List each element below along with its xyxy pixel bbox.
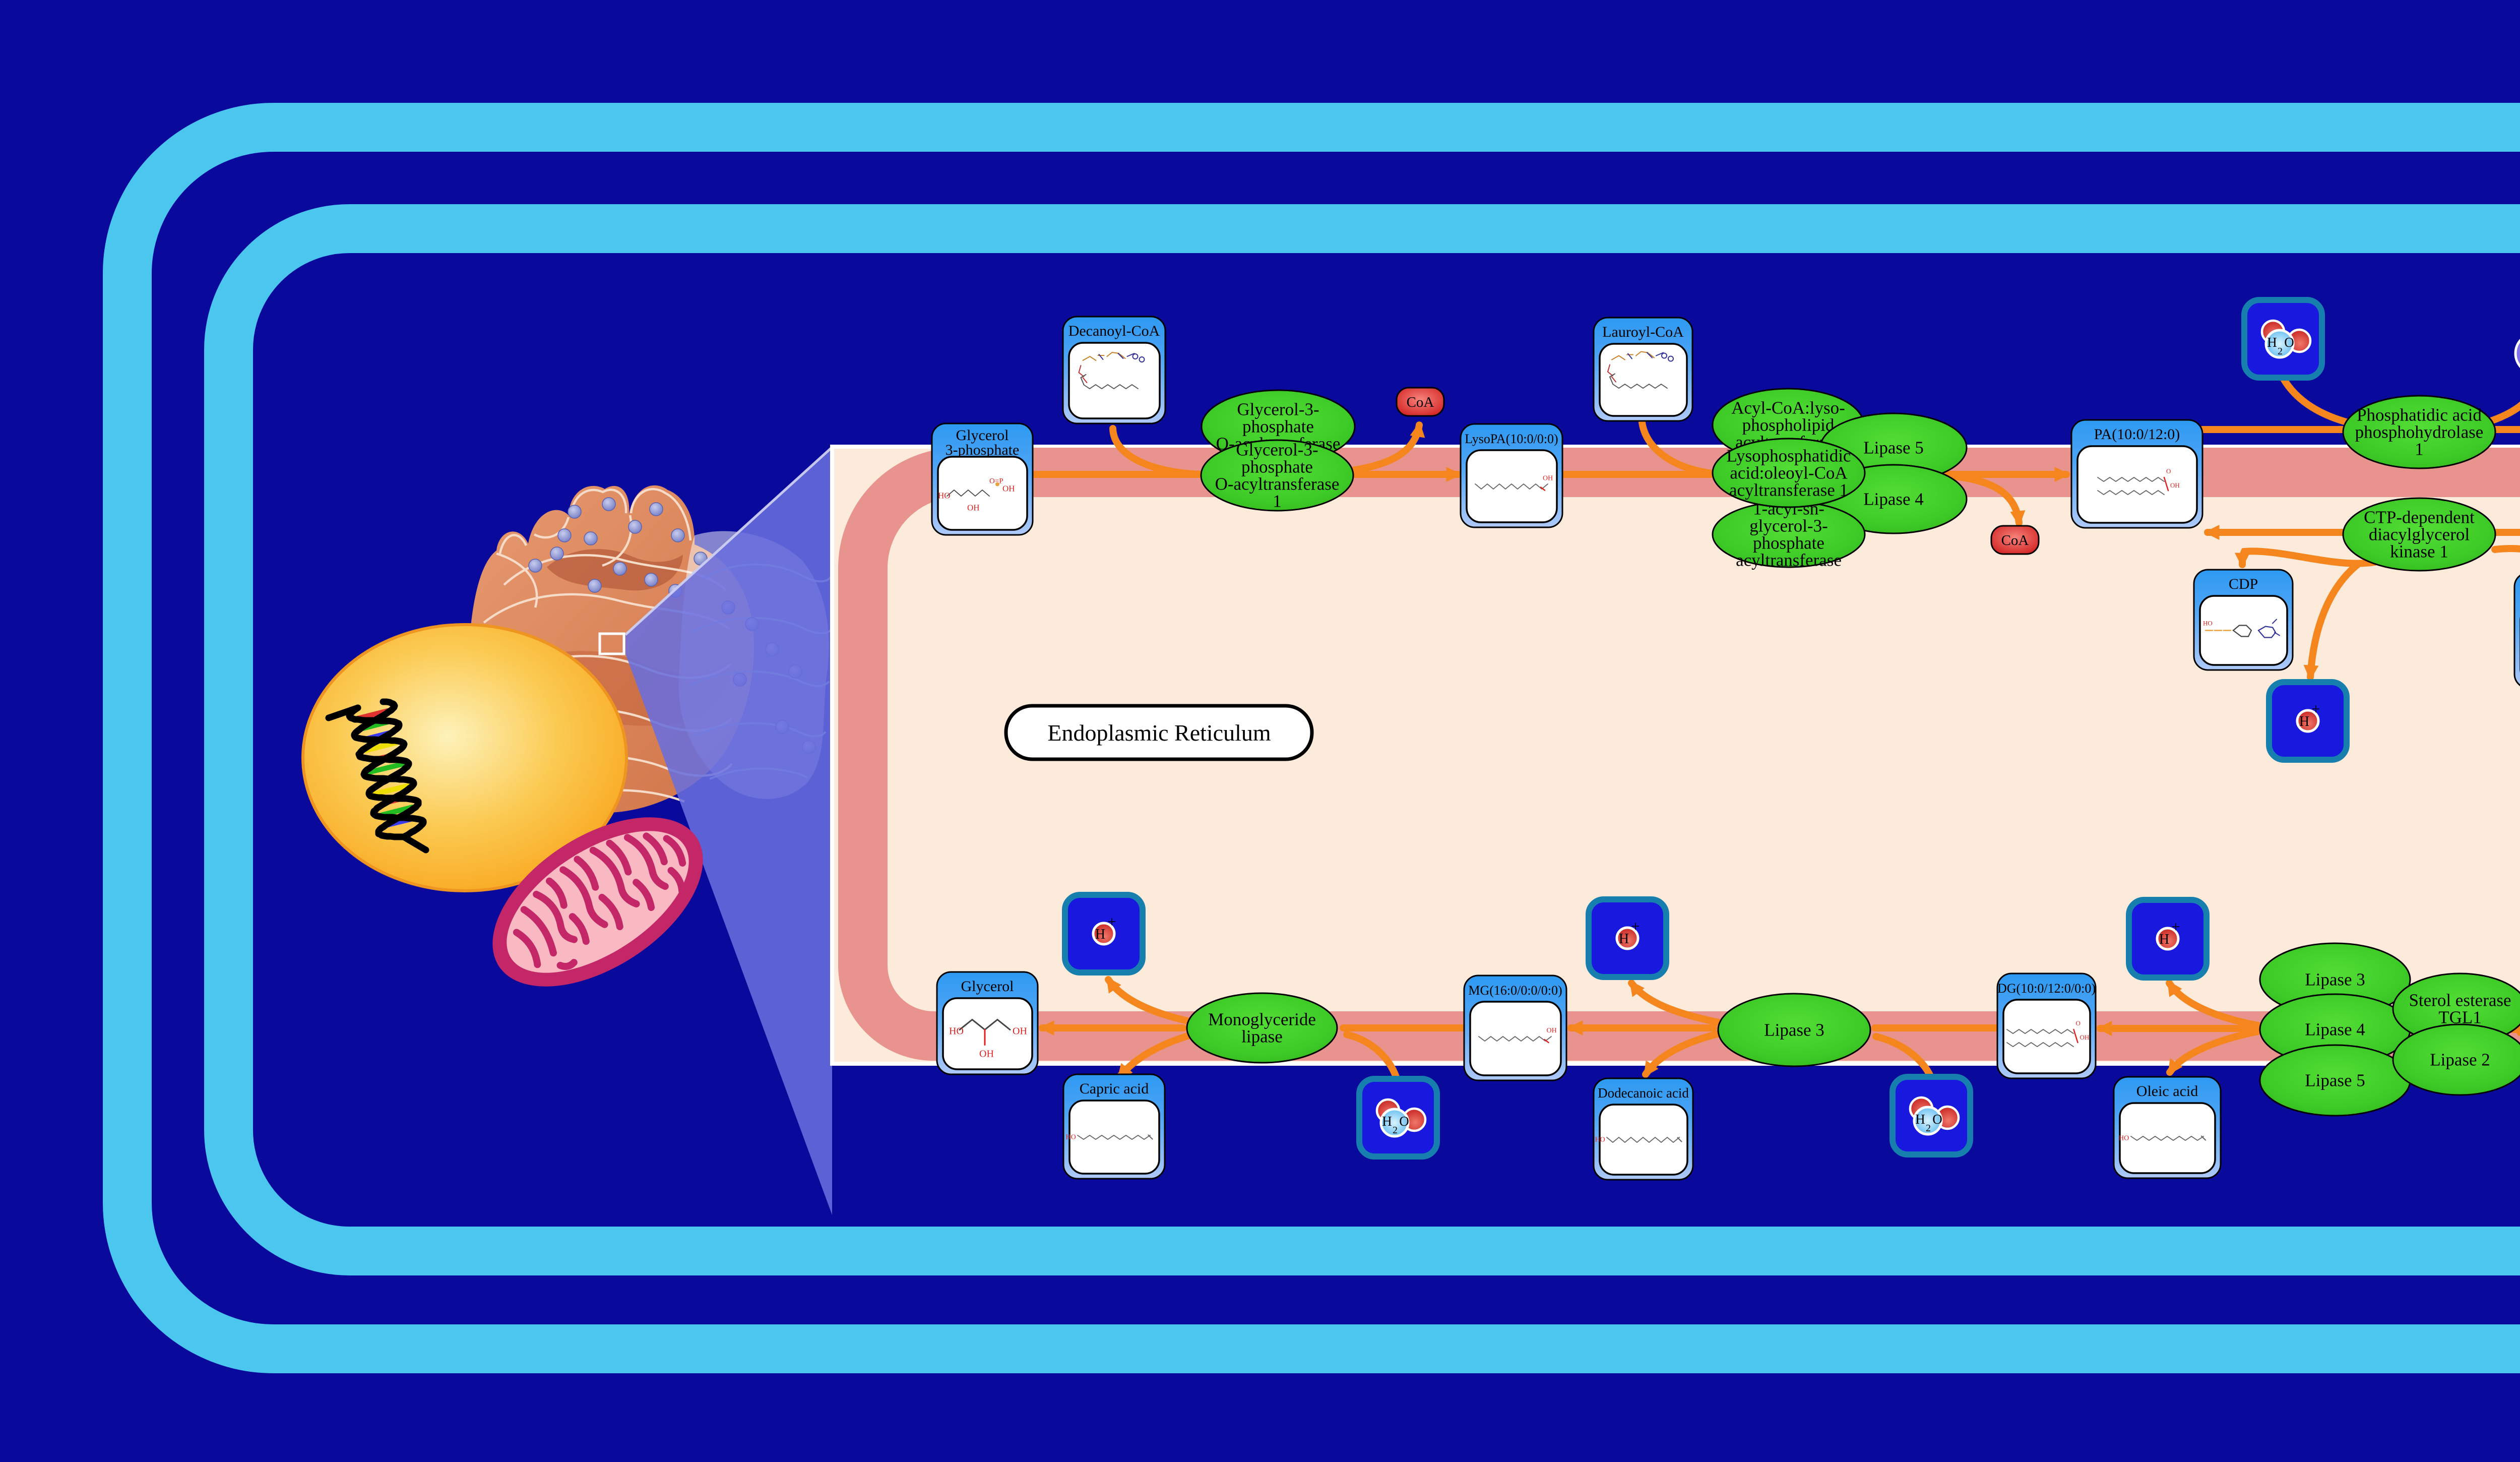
- svg-text:OH: OH: [1543, 475, 1553, 482]
- svg-text:+: +: [1108, 913, 1116, 930]
- svg-text:Glycerol: Glycerol: [961, 978, 1014, 995]
- svg-text:HO: HO: [2203, 620, 2213, 627]
- svg-text:Lipase 4: Lipase 4: [1863, 490, 1924, 509]
- svg-text:OH: OH: [979, 1049, 994, 1060]
- svg-text:Lipase 5: Lipase 5: [2305, 1071, 2365, 1090]
- svg-text:Oleic acid: Oleic acid: [2136, 1083, 2198, 1100]
- svg-text:Lipase 3: Lipase 3: [2305, 970, 2365, 990]
- svg-text:HO: HO: [2119, 1135, 2129, 1142]
- svg-text:CoA: CoA: [2001, 532, 2029, 549]
- svg-text:H: H: [2267, 335, 2277, 350]
- svg-text:2: 2: [2278, 346, 2283, 357]
- svg-text:O: O: [2284, 335, 2294, 350]
- svg-text:+: +: [2172, 919, 2180, 935]
- svg-text:Endoplasmic Reticulum: Endoplasmic Reticulum: [1047, 720, 1271, 746]
- svg-text:LysoPA(10:0/0:0): LysoPA(10:0/0:0): [1465, 432, 1558, 446]
- svg-text:HO: HO: [1595, 1136, 1605, 1144]
- svg-text:Capric acid: Capric acid: [1080, 1080, 1149, 1097]
- svg-text:OH: OH: [1547, 1027, 1557, 1034]
- svg-text:H: H: [1915, 1112, 1925, 1127]
- svg-text:Lipase 2: Lipase 2: [2430, 1050, 2490, 1070]
- svg-text:2: 2: [1926, 1123, 1931, 1134]
- svg-text:OH: OH: [1013, 1026, 1027, 1037]
- svg-text:H: H: [1095, 927, 1105, 942]
- svg-text:DG(10:0/12:0/0:0): DG(10:0/12:0/0:0): [1997, 981, 2096, 996]
- svg-text:H: H: [2299, 714, 2309, 729]
- svg-text:Lipase 4: Lipase 4: [2305, 1020, 2365, 1040]
- svg-text:Lipase 3: Lipase 3: [1764, 1020, 1824, 1040]
- svg-text:HO: HO: [1066, 1134, 1076, 1141]
- svg-text:CDP: CDP: [2229, 576, 2258, 592]
- svg-text:Lipase 5: Lipase 5: [1863, 438, 1924, 458]
- svg-text:+: +: [2312, 701, 2320, 717]
- svg-text:H: H: [2159, 932, 2169, 947]
- svg-text:O: O: [2076, 1019, 2081, 1027]
- svg-text:MG(16:0/0:0/0:0): MG(16:0/0:0/0:0): [1468, 983, 1562, 998]
- svg-text:H: H: [1382, 1114, 1392, 1129]
- svg-text:Dodecanoic acid: Dodecanoic acid: [1598, 1085, 1689, 1101]
- svg-text:O: O: [2166, 467, 2171, 475]
- svg-text:O: O: [1399, 1114, 1409, 1129]
- svg-text:PA(10:0/12:0): PA(10:0/12:0): [2094, 426, 2180, 443]
- svg-text:Lysophosphatidicacid:oleoyl-Co: Lysophosphatidicacid:oleoyl-CoAacyltrans…: [1727, 446, 1851, 500]
- svg-text:Decanoyl-CoA: Decanoyl-CoA: [1068, 323, 1160, 339]
- svg-text:HO: HO: [938, 491, 951, 501]
- svg-text:Glycerol3-phosphate: Glycerol3-phosphate: [946, 427, 1020, 458]
- svg-text:OH: OH: [2080, 1033, 2090, 1041]
- svg-text:OH: OH: [2170, 481, 2180, 489]
- svg-text:2: 2: [1393, 1125, 1398, 1136]
- svg-text:OH: OH: [967, 503, 980, 513]
- svg-text:HO: HO: [949, 1026, 964, 1037]
- svg-text:OH: OH: [1002, 484, 1015, 494]
- svg-text:+: +: [1631, 918, 1640, 935]
- svg-text:O=P: O=P: [989, 477, 1003, 485]
- svg-text:O: O: [1932, 1112, 1942, 1127]
- svg-text:Lauroyl-CoA: Lauroyl-CoA: [1602, 324, 1684, 340]
- svg-text:CoA: CoA: [1407, 394, 1434, 410]
- svg-text:H: H: [1619, 931, 1629, 947]
